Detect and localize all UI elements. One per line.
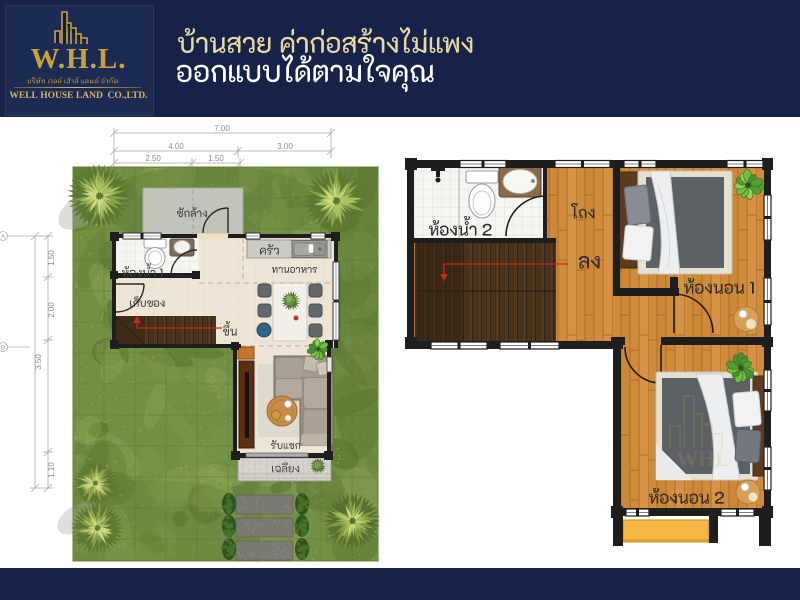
svg-text:1.10: 1.10 (47, 462, 56, 478)
svg-text:1.50: 1.50 (208, 154, 224, 163)
svg-text:7.00: 7.00 (214, 124, 230, 133)
svg-text:3.00: 3.00 (277, 142, 293, 151)
svg-text:2.50: 2.50 (145, 154, 161, 163)
svg-text:2.00: 2.00 (47, 302, 56, 318)
svg-text:WHL: WHL (676, 446, 730, 471)
svg-text:B: B (1, 346, 5, 352)
svg-text:1.50: 1.50 (47, 250, 56, 266)
svg-text:A: A (1, 235, 5, 241)
svg-text:3.50: 3.50 (34, 354, 43, 370)
svg-text:4.00: 4.00 (168, 142, 184, 151)
